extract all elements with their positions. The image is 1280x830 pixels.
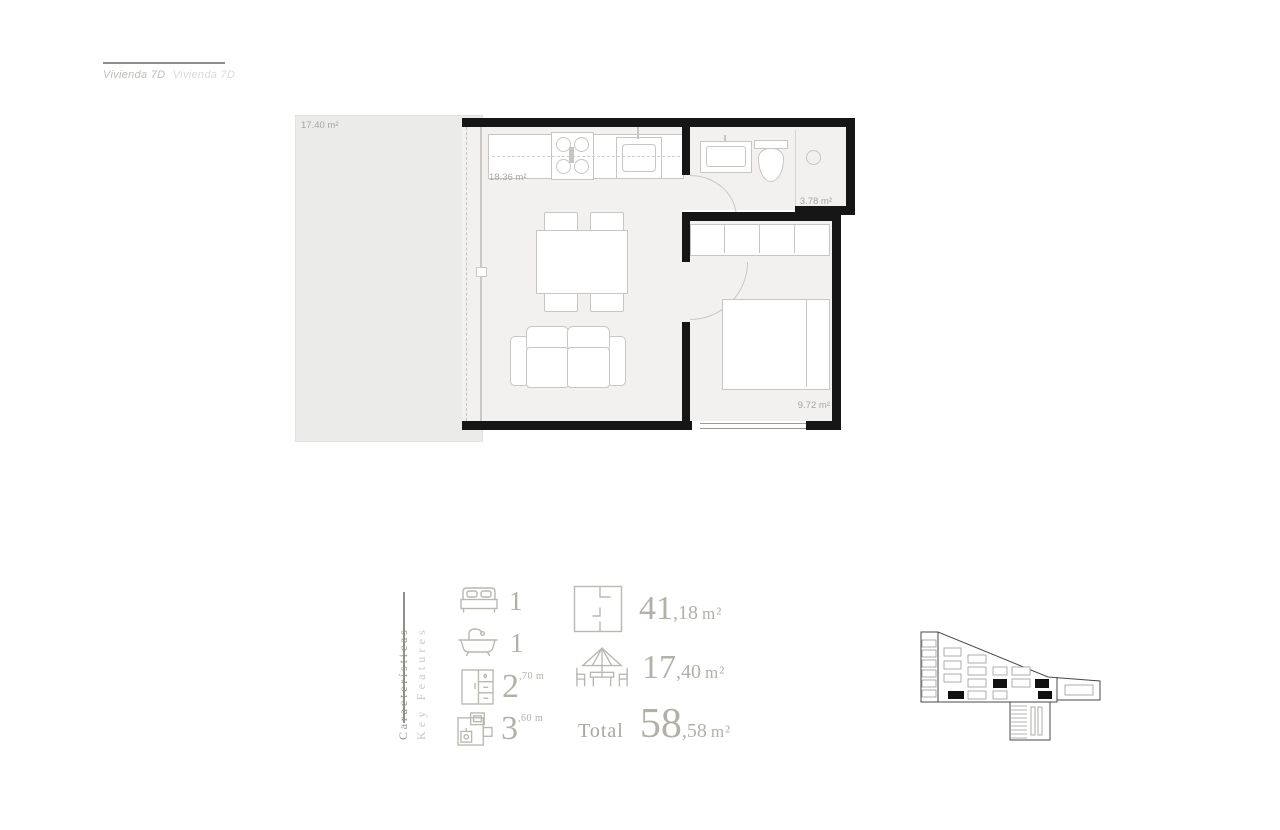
feature-wardrobe: 2,70 m [461,669,544,705]
legend-heading-es: Características [396,627,411,740]
terrace-area-label: 17.40 m² [301,120,339,131]
bed-icon [459,586,499,614]
feature-value: 3,60 m [501,712,543,746]
wall-segment [682,322,690,430]
feature-value: 1 [509,585,523,615]
wall-segment [682,212,841,221]
wall-segment [682,127,690,175]
glass-door-junction [476,267,487,277]
stove-center-detail [569,147,574,163]
area-built: 41,18 m² [573,585,722,633]
glass-door-panel [480,127,482,268]
bathroom-tap [724,135,726,142]
bed-headboard-line [806,300,807,387]
glass-door-panel [480,276,482,421]
feature-value: 2,70 m [502,670,544,704]
feature-bathrooms: 1 [456,626,524,657]
terrace-icon [574,645,630,690]
dining-table [536,230,628,294]
living-area-label: 18.36 m² [489,172,527,183]
kitchen-sink-basin [622,144,656,172]
total-area-value: 58,58 m² [640,700,731,748]
shower-divider [795,130,796,206]
wardrobe-icon [461,669,494,705]
feature-value: 1 [510,627,524,657]
legend-heading-en: Key Features [414,626,429,740]
kitchen-tap [637,127,639,139]
floorplan-icon [573,585,623,633]
built-area-value: 41,18 m² [639,590,722,628]
wall-segment [832,212,841,430]
sofa-seat [567,347,610,388]
feature-kitchen: 3,60 m [457,712,543,746]
stove-burner [574,159,589,174]
bedroom-window [700,423,806,429]
wall-segment [462,421,692,430]
wall-segment [806,421,841,430]
total-label: Total [578,720,624,743]
terrace-boundary-dashed-line [466,127,467,421]
title-secondary: Vivienda 7D [173,69,235,81]
wall-segment [462,118,855,127]
area-terrace: 17,40 m² [574,645,725,690]
wardrobe [690,224,830,256]
sofa-seat [526,347,569,388]
title-primary: Vivienda 7D [103,69,165,81]
header-rule [103,62,225,64]
stove-burner [574,137,589,152]
building-key-plan [905,615,1105,750]
bathroom-area-label: 3.78 m² [788,196,832,207]
wardrobe-divider [724,225,725,253]
area-total: Total 58,58 m² [578,700,731,748]
staircase [1010,706,1042,738]
wardrobe-divider [794,225,795,253]
feature-bedrooms: 1 [459,585,523,615]
shower-drain [806,150,821,165]
wardrobe-divider [759,225,760,253]
wall-segment [846,118,855,215]
terrace-area-value: 17,40 m² [642,649,725,687]
wall-segment [682,221,690,262]
bathroom-sink-basin [706,146,746,167]
terrace-area [295,115,483,442]
floor-plan-page: Vivienda 7D Vivienda 7D 17.40 m² 18.36 m… [0,0,1280,830]
page-title: Vivienda 7D Vivienda 7D [103,69,235,81]
bedroom-area-label: 9.72 m² [784,400,830,411]
bed [722,299,830,390]
kitchen-icon [457,712,493,746]
bathtub-icon [456,626,500,657]
